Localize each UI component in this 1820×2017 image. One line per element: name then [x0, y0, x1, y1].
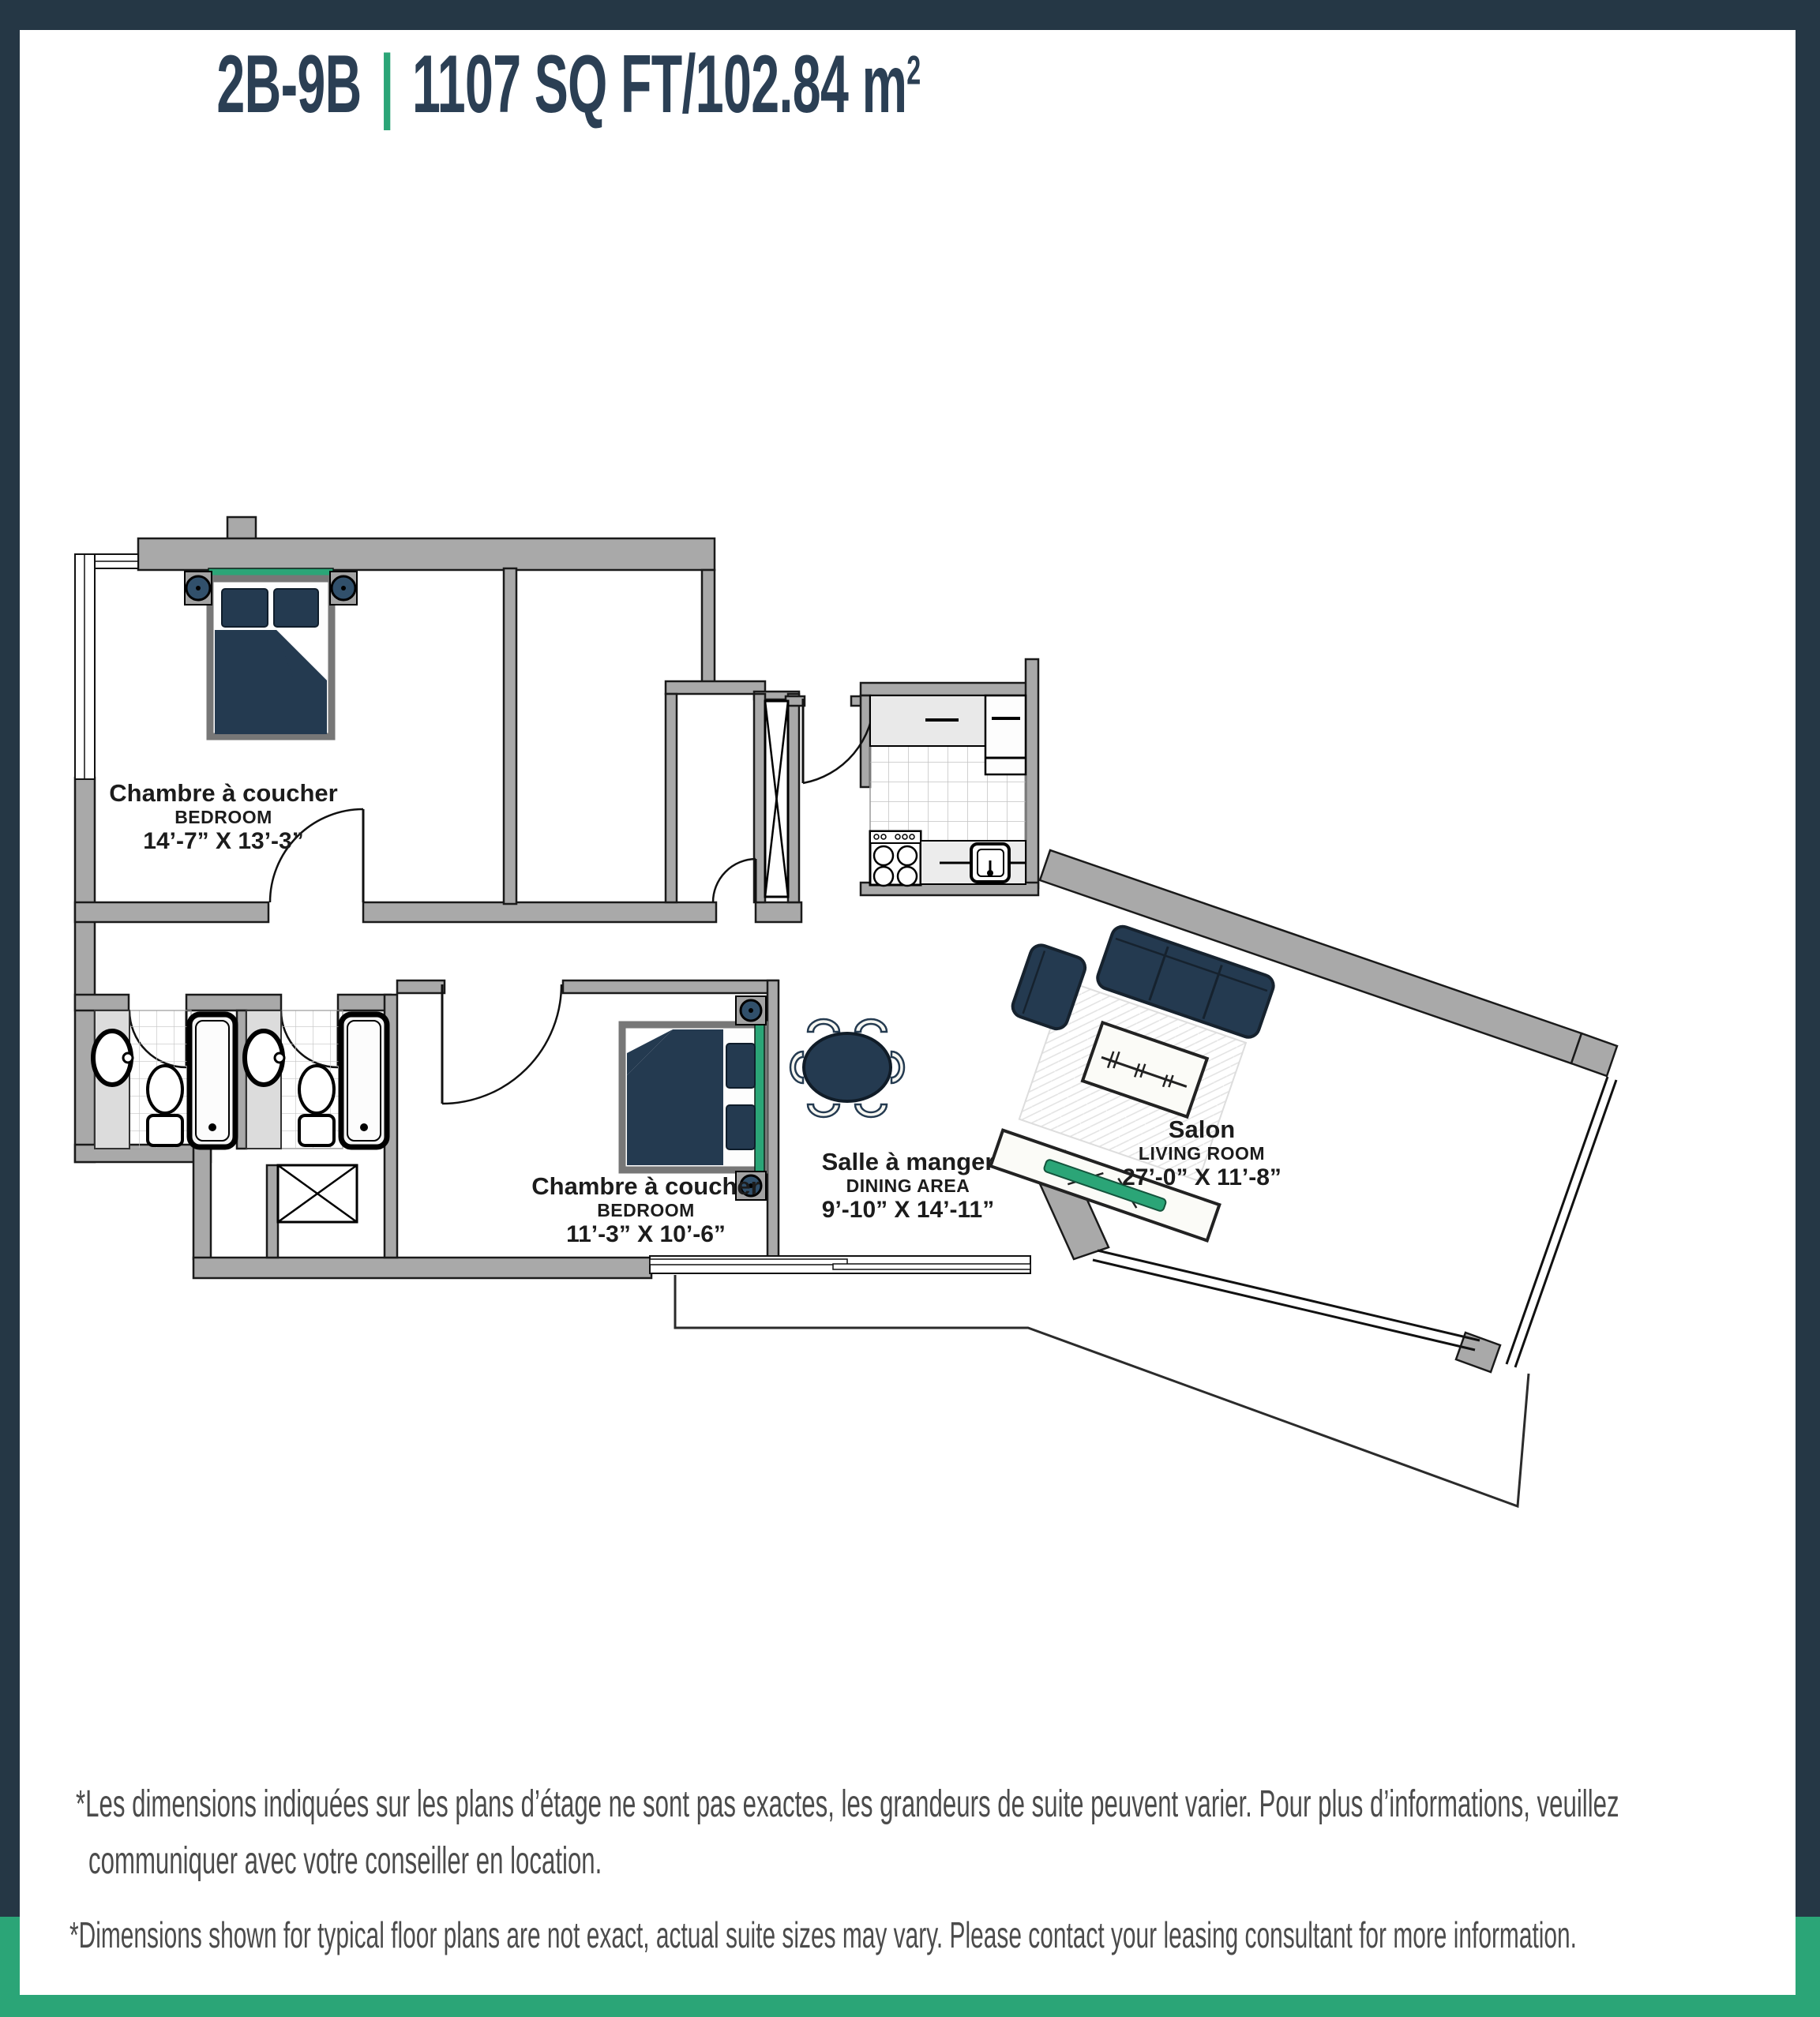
wall-top-tab	[227, 517, 256, 539]
wall-bedroom2-top	[563, 980, 778, 993]
nightstand-icon	[736, 996, 766, 1025]
bedroom2-name-fr: Chambre à coucher	[531, 1173, 760, 1200]
label-dining: Salle à manger DINING AREA 9’-10” X 14’-…	[822, 1149, 995, 1224]
wall-hallcloset-left	[666, 694, 677, 902]
window-living-right-a	[1507, 1077, 1608, 1364]
bedroom1-furniture	[185, 568, 357, 737]
unit-name: 2B-9B	[216, 39, 361, 130]
bedroom1-dimensions: 14’-7” X 13’-3”	[109, 828, 337, 855]
bed-icon	[622, 1023, 764, 1172]
toilet-icon	[148, 1066, 182, 1145]
page-title: 2B-9B | 1107 SQ FT/102.84 m2	[216, 38, 921, 132]
stove-icon	[870, 831, 921, 886]
living-name-en: LIVING ROOM	[1122, 1143, 1282, 1164]
floor-plan-page: 2B-9B | 1107 SQ FT/102.84 m2	[0, 0, 1820, 2017]
window-living-bottom-a	[1098, 1250, 1480, 1340]
dining-name-fr: Salle à manger	[822, 1149, 995, 1175]
wall-bath-divider	[237, 1010, 246, 1149]
door-bedroom2	[442, 984, 561, 1104]
title-separator: |	[375, 39, 399, 130]
disclaimer-fr-line1: *Les dimensions indiquées sur les plans …	[76, 1783, 1619, 1826]
unit-area: 1107 SQ FT/102.84 m	[412, 39, 906, 130]
wall-kitchen-right	[1026, 659, 1038, 888]
bedroom2-dimensions: 11’-3” X 10’-6”	[531, 1221, 760, 1248]
wall-bedroom1-right	[504, 568, 516, 904]
dining-table-icon	[804, 1033, 891, 1101]
kitchen-fridge	[985, 695, 1026, 774]
wall-bedroom1-bottom-left	[75, 902, 268, 922]
wall-bedroom2-top-left	[397, 980, 445, 993]
wall-storage-left	[267, 1165, 278, 1258]
wall-closet-bottom	[756, 902, 801, 922]
bottom-border-bar	[0, 1995, 1820, 2017]
floor-plan-drawing	[0, 505, 1820, 1571]
wall-kitchen-top	[861, 683, 1036, 695]
sink-icon	[971, 844, 1009, 882]
dining-name-en: DINING AREA	[822, 1175, 995, 1197]
bedroom1-name-en: BEDROOM	[109, 807, 337, 828]
nightstand-icon	[185, 572, 212, 605]
headboard	[755, 1023, 764, 1172]
patio-door	[650, 1256, 1030, 1273]
window-living-right-b	[1515, 1080, 1616, 1367]
bedroom2-furniture	[622, 996, 766, 1200]
bathtub-icon	[341, 1014, 387, 1147]
wall-step-vertical	[193, 1145, 211, 1259]
bedroom1-name-fr: Chambre à coucher	[109, 780, 337, 807]
bedroom2-name-en: BEDROOM	[531, 1200, 760, 1221]
bed-icon	[208, 568, 333, 737]
wall-bottom-band	[193, 1258, 651, 1278]
kitchen	[870, 695, 1026, 886]
wall-top-band	[138, 538, 715, 570]
dining-set	[790, 1019, 904, 1117]
bathroom2	[245, 1010, 387, 1149]
pillow	[222, 589, 268, 627]
wall-hall-step	[702, 570, 715, 687]
bathtub-icon	[190, 1014, 235, 1147]
top-border-bar	[0, 0, 1820, 30]
door-hall-closet	[713, 859, 756, 902]
wall-linencloset-right	[788, 694, 799, 902]
area-exponent: 2	[906, 47, 920, 93]
wall-bath-top-2	[186, 995, 281, 1010]
storage-closet-icon	[278, 1165, 357, 1222]
linen-closet-icon	[765, 701, 788, 897]
bathroom1	[93, 1010, 235, 1149]
disclaimer-fr-line2: communiquer avec votre conseiller en loc…	[88, 1839, 602, 1883]
window-living-bottom-b	[1093, 1260, 1475, 1350]
toilet-icon	[299, 1066, 334, 1145]
wall-bedroom1-bottom-right	[363, 902, 716, 922]
pillow	[274, 589, 318, 627]
wall-bath-top-3	[338, 995, 391, 1010]
label-living: Salon LIVING ROOM 27’-0” X 11’-8”	[1122, 1116, 1282, 1191]
wall-living-corner-stub	[1456, 1333, 1500, 1372]
label-bedroom2: Chambre à coucher BEDROOM 11’-3” X 10’-6…	[531, 1173, 760, 1248]
nightstand-icon	[330, 572, 357, 605]
label-bedroom1: Chambre à coucher BEDROOM 14’-7” X 13’-3…	[109, 780, 337, 855]
wall-bedroom2-right	[767, 980, 779, 1258]
wall-left	[75, 778, 95, 1162]
pillow	[726, 1105, 755, 1149]
wall-bath-top-1	[75, 995, 129, 1010]
pillow	[726, 1044, 755, 1088]
living-dimensions: 27’-0” X 11’-8”	[1122, 1164, 1282, 1191]
balcony-railing	[675, 1275, 1529, 1506]
living-name-fr: Salon	[1122, 1116, 1282, 1143]
disclaimer-en: *Dimensions shown for typical floor plan…	[69, 1914, 1577, 1956]
wall-hallcloset-top	[666, 681, 765, 694]
dining-dimensions: 9’-10” X 14’-11”	[822, 1197, 995, 1224]
